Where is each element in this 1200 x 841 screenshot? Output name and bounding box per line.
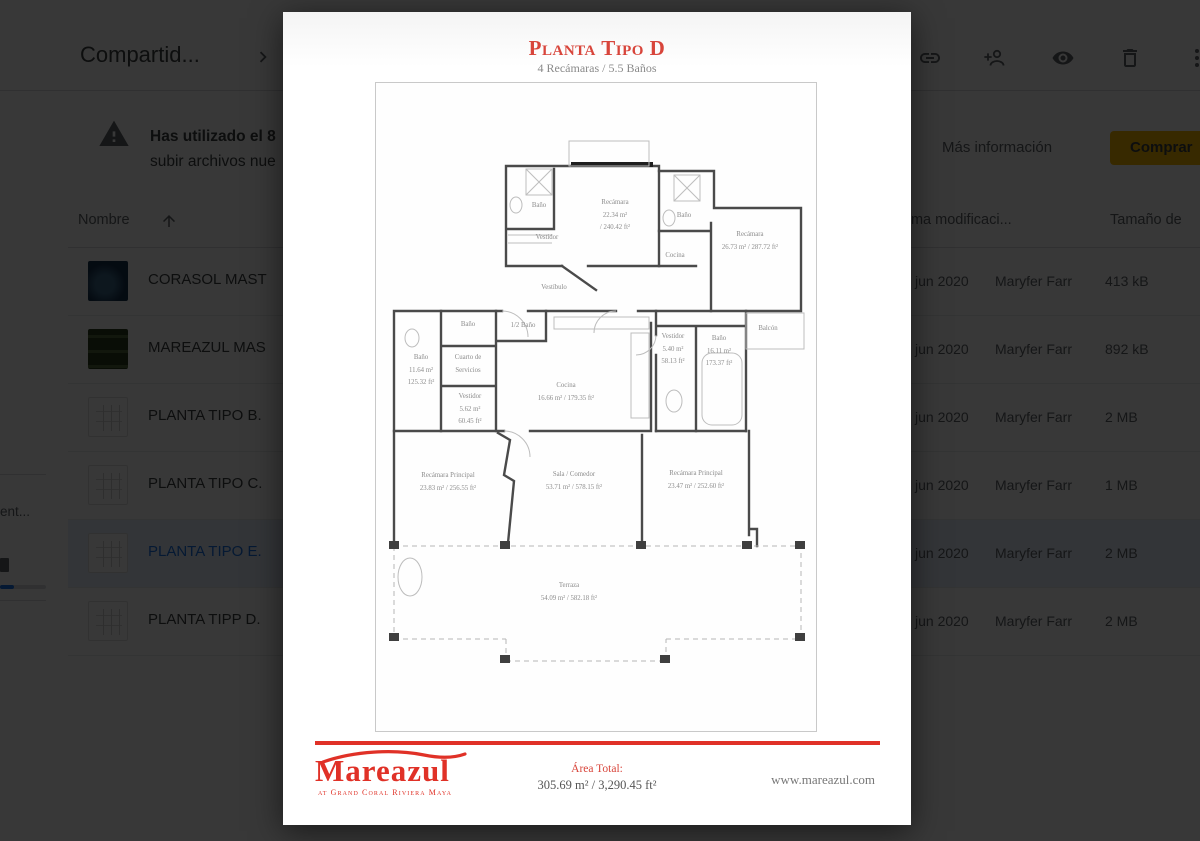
room-label-recamara-1: Recámara22.34 m²/ 240.42 ft² [600, 197, 630, 235]
room-label-vestidor-1: Vestidor [536, 232, 559, 245]
pdf-preview-modal: Planta Tipo D 4 Recámaras / 5.5 Baños [283, 12, 911, 825]
floor-plan-canvas: Baño Recámara22.34 m²/ 240.42 ft² Vestid… [375, 82, 817, 732]
floor-plan-drawing [376, 83, 816, 731]
room-label-bano-2: Baño [677, 210, 691, 223]
footer-rule [315, 741, 880, 745]
room-label-vestidor-servicio: Vestidor5.62 m²60.45 ft² [458, 391, 481, 429]
room-label-vestidor-2: Vestidor5.40 m²58.13 ft² [661, 331, 684, 369]
room-label-bano-4: Baño11.64 m²125.32 ft² [408, 352, 435, 390]
room-label-recamara-2: Recámara26.73 m² / 287.72 ft² [722, 229, 778, 254]
page-subtitle: 4 Recámaras / 5.5 Baños [283, 61, 911, 76]
brand-tagline: at Grand Coral Riviera Maya [315, 788, 495, 797]
area-total-label: Área Total: [538, 763, 657, 775]
room-label-cocina-mueble: Cocina [665, 250, 684, 263]
area-total-block: Área Total: 305.69 m² / 3,290.45 ft² [538, 763, 657, 793]
area-total-value: 305.69 m² / 3,290.45 ft² [538, 778, 657, 793]
room-label-balcon: Balcón [758, 323, 777, 336]
room-label-cuarto-servicios: Cuarto deServicios [455, 352, 482, 377]
room-label-vestibulo: Vestíbulo [541, 282, 567, 295]
brand-logo: Mareazul at Grand Coral Riviera Maya [315, 754, 495, 797]
room-label-recamara-principal-der: Recámara Principal23.47 m² / 252.60 ft² [668, 468, 724, 493]
room-label-terraza: Terraza54.09 m² / 582.18 ft² [541, 580, 597, 605]
room-label-cocina: Cocina16.66 m² / 179.35 ft² [538, 380, 594, 405]
room-label-medio-bano: 1/2 Baño [511, 320, 536, 333]
room-label-sala-comedor: Sala / Comedor53.71 m² / 578.15 ft² [546, 469, 602, 494]
brand-wave-icon [319, 750, 469, 764]
page-title: Planta Tipo D [283, 36, 911, 61]
room-label-bano-3: Baño [461, 319, 475, 332]
room-label-bano-5: Baño16.11 m²173.37 ft² [706, 333, 733, 371]
room-label-bano-1: Baño [532, 200, 546, 213]
room-label-recamara-principal-izq: Recámara Principal23.83 m² / 256.55 ft² [420, 470, 476, 495]
website-link: www.mareazul.com [771, 772, 875, 788]
